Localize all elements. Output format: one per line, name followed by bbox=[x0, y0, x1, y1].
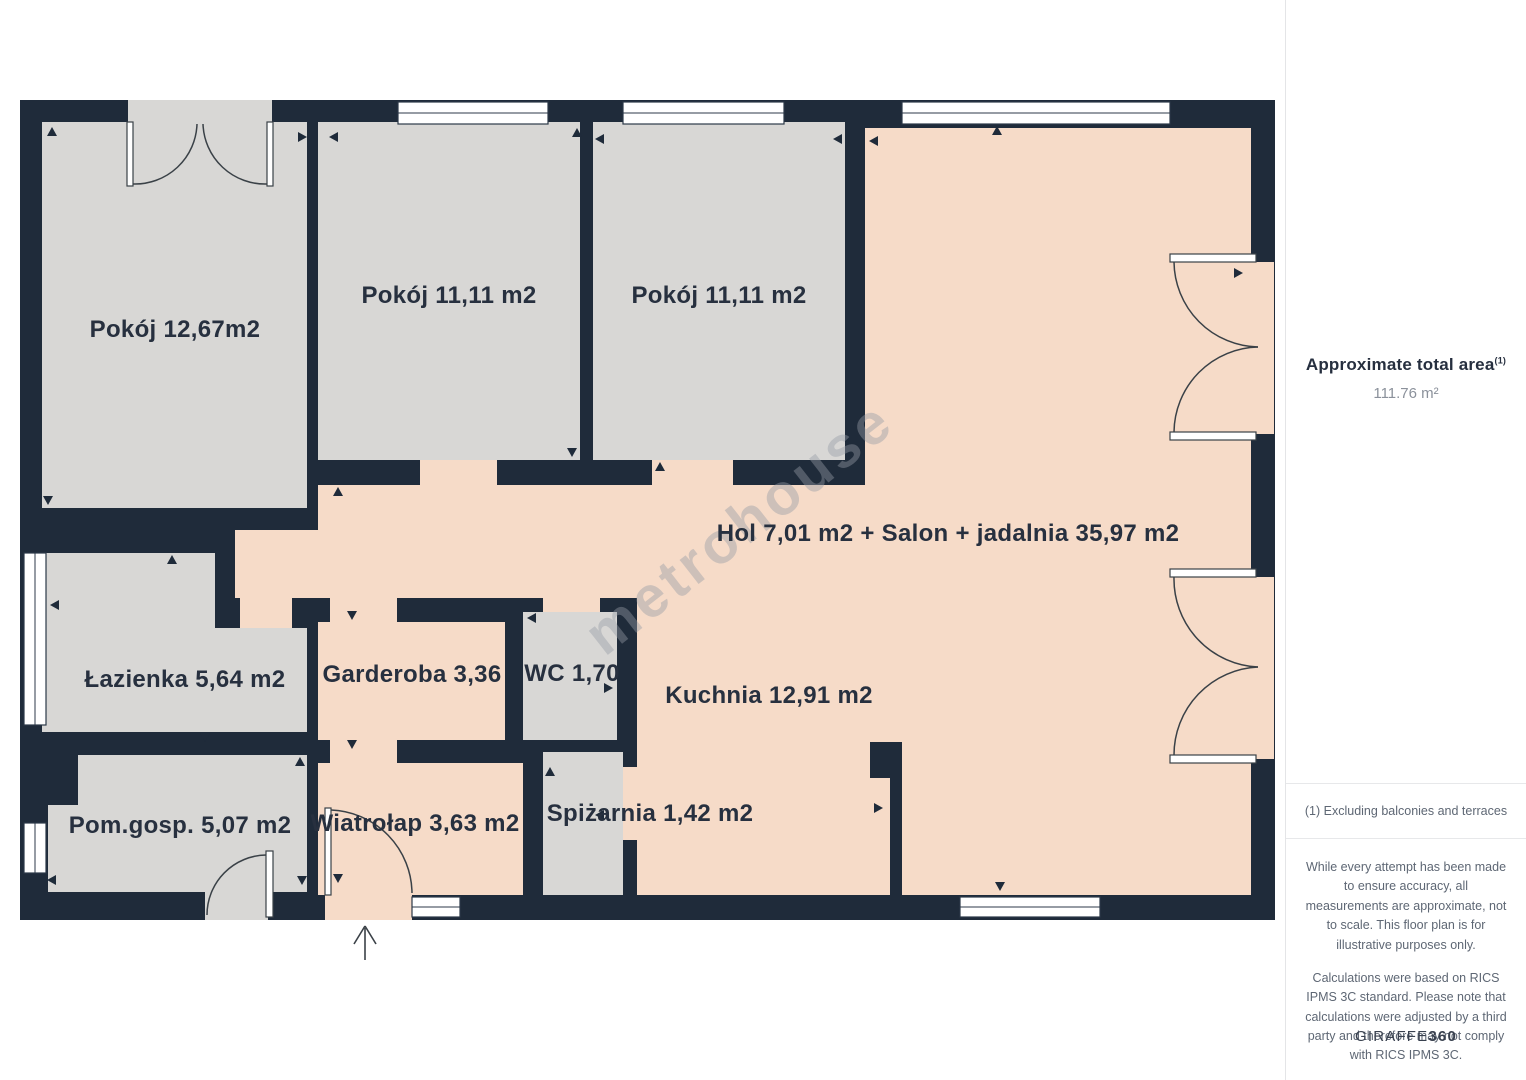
doorway-salon-balcony-2 bbox=[1251, 577, 1274, 759]
room-label-wiatrolap: Wiatrołap 3,63 m2 bbox=[311, 810, 520, 837]
total-area-title-text: Approximate total area bbox=[1306, 355, 1495, 374]
room-label-kuchnia: Kuchnia 12,91 m2 bbox=[665, 682, 873, 709]
window-left-pom-gosp bbox=[24, 823, 46, 873]
room-label-garderoba: Garderoba 3,36 bbox=[323, 661, 502, 688]
floorplan-page: { "floorplan": { "watermark": "metrohous… bbox=[0, 0, 1526, 1080]
brand-suffix: 360 bbox=[1428, 1028, 1457, 1045]
total-area-value: 111.76 m² bbox=[1286, 385, 1526, 402]
room-label-hol-salon: Hol 7,01 m2 + Salon + jadalnia 35,97 m2 bbox=[717, 520, 1180, 547]
wall-notch bbox=[48, 755, 78, 805]
entrance-arrow-icon bbox=[354, 926, 376, 960]
room-salon-floor bbox=[865, 128, 1251, 895]
window-top-salon bbox=[902, 102, 1170, 124]
doorway-hol-garderoba bbox=[330, 598, 397, 622]
doorway-pom-gosp-exterior bbox=[205, 892, 268, 920]
disclaimer-accuracy: While every attempt has been made to ens… bbox=[1304, 858, 1508, 955]
doorway-hol-lazienka bbox=[240, 598, 292, 628]
room-label-lazienka: Łazienka 5,64 m2 bbox=[85, 666, 286, 693]
window-top-pokoj-2 bbox=[398, 102, 548, 124]
room-kuchnia-floor bbox=[637, 598, 865, 895]
footnote-section: (1) Excluding balconies and terraces bbox=[1286, 783, 1526, 839]
total-area-title: Approximate total area(1) bbox=[1286, 355, 1526, 375]
room-label-wc: WC 1,70 bbox=[524, 660, 619, 687]
brand-name: GIRAFFE bbox=[1355, 1028, 1428, 1045]
doorway-pokoj-2 bbox=[420, 460, 497, 485]
total-area-superscript: (1) bbox=[1495, 355, 1507, 365]
info-sidebar: Approximate total area(1) 111.76 m² (1) … bbox=[1285, 0, 1526, 1080]
disclaimer-rics: Calculations were based on RICS IPMS 3C … bbox=[1304, 969, 1508, 1066]
window-top-pokoj-3 bbox=[623, 102, 784, 124]
footnote-text: (1) Excluding balconies and terraces bbox=[1305, 804, 1507, 818]
room-label-pokoj-2: Pokój 11,11 m2 bbox=[362, 282, 537, 309]
kitchen-salon-wall bbox=[890, 778, 902, 895]
kitchen-wall-pillar bbox=[870, 742, 902, 778]
room-label-spizarnia: Spiżarnia 1,42 m2 bbox=[547, 800, 754, 827]
disclaimer-section: While every attempt has been made to ens… bbox=[1304, 858, 1508, 1080]
window-left-lazienka bbox=[24, 553, 46, 725]
doorway-entrance bbox=[325, 895, 412, 920]
window-bottom-kuchnia bbox=[960, 897, 1100, 917]
doorway-pokoj-1-balcony bbox=[128, 100, 272, 124]
doorway-garderoba-wiatrolap bbox=[330, 740, 397, 763]
room-label-pom-gosp: Pom.gosp. 5,07 m2 bbox=[69, 812, 292, 839]
room-label-pokoj-3: Pokój 11,11 m2 bbox=[632, 282, 807, 309]
total-area-block: Approximate total area(1) 111.76 m² bbox=[1286, 355, 1526, 402]
floorplan-drawing: metrohouse Pokój 12,67m2 Pokój 11,11 m2 … bbox=[0, 0, 1285, 1080]
giraffe360-logo: GIRAFFE360 bbox=[1286, 1028, 1526, 1045]
window-bottom-wiatrolap bbox=[412, 897, 460, 917]
room-label-pokoj-1: Pokój 12,67m2 bbox=[90, 316, 261, 343]
doorway-salon-balcony-1 bbox=[1251, 262, 1274, 434]
doorway-pokoj-3 bbox=[652, 460, 733, 485]
